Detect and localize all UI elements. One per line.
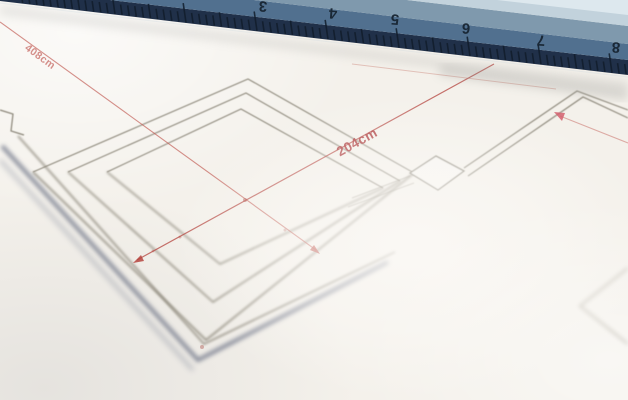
ruler-number-7: 7 (536, 31, 546, 49)
ruler-number-6: 6 (461, 19, 471, 37)
photo-floor-plan-with-ruler: 408cm204cm 345678 (0, 0, 628, 400)
scene-svg: 408cm204cm 345678 (0, 0, 628, 400)
ruler-number-5: 5 (390, 10, 400, 28)
ruler-number-3: 3 (258, 0, 268, 15)
ruler-number-8: 8 (611, 38, 621, 56)
